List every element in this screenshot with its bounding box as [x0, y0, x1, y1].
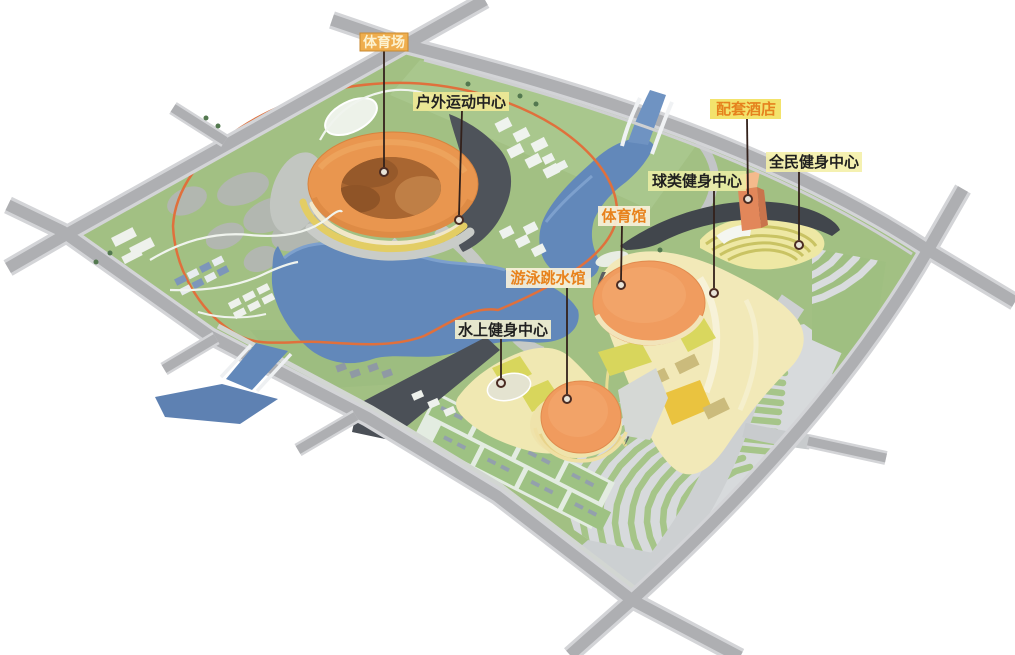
svg-text:配套酒店: 配套酒店: [716, 100, 776, 118]
svg-text:体育场: 体育场: [363, 34, 405, 50]
svg-text:体育馆: 体育馆: [601, 207, 646, 225]
svg-text:户外运动中心: 户外运动中心: [416, 93, 506, 111]
svg-text:球类健身中心: 球类健身中心: [652, 172, 742, 190]
svg-text:游泳跳水馆: 游泳跳水馆: [510, 269, 585, 287]
svg-text:水上健身中心: 水上健身中心: [458, 321, 548, 339]
svg-text:全民健身中心: 全民健身中心: [768, 153, 859, 171]
